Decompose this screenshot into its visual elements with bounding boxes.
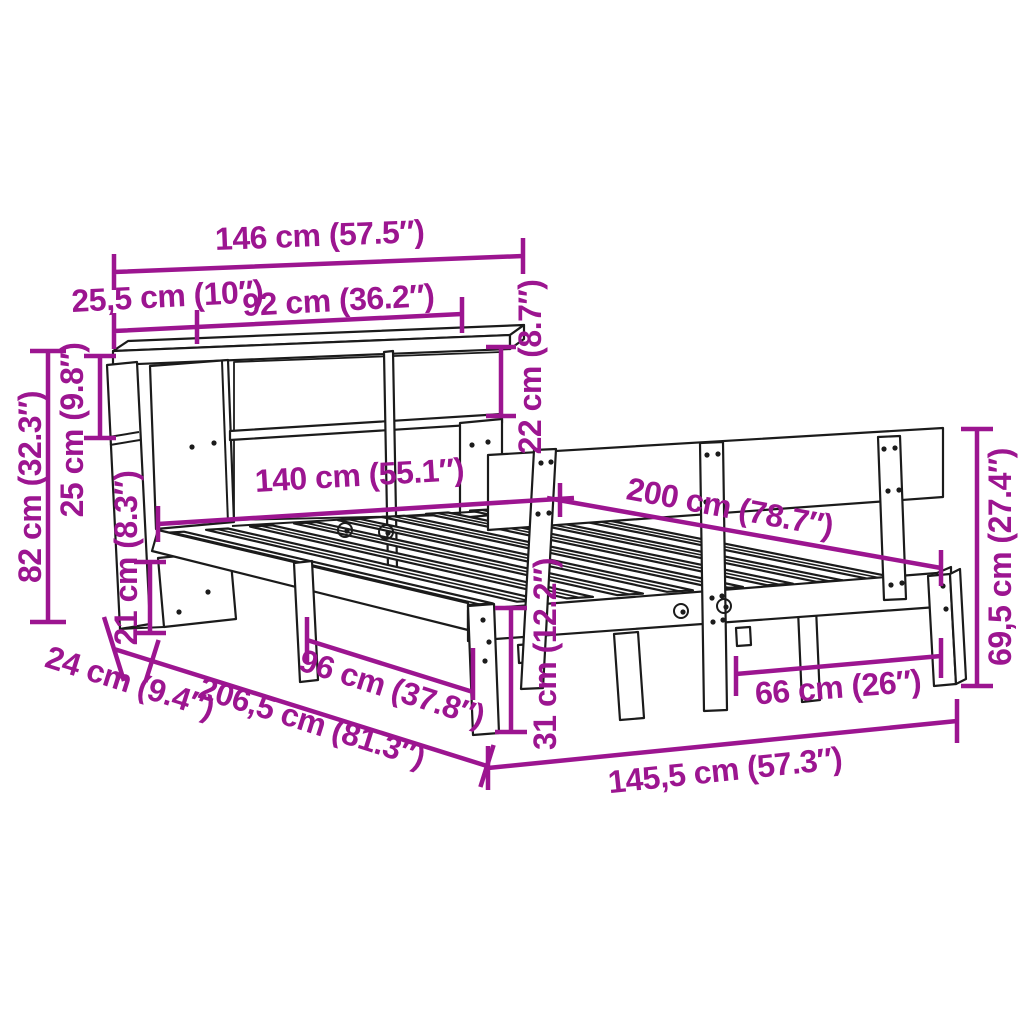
- dim-headboard-height-label: 69,5 cm (27.4″): [982, 448, 1018, 666]
- dim-left-shelf-height-label: 25 cm (9.8″): [54, 343, 90, 518]
- dim-frame-height-label: 31 cm (12.2″): [527, 558, 563, 750]
- bed-diagram-svg: 146 cm (57.5″) 25,5 cm (10″) 92 cm (36.2…: [0, 0, 1024, 1024]
- dim-headboard-height: 69,5 cm (27.4″): [961, 429, 1018, 686]
- dim-total-width-label: 145,5 cm (57.3″): [606, 740, 844, 800]
- dim-top-shelf-height-label: 22 cm (8.7″): [512, 280, 548, 455]
- dim-bottom-clearance-label: 21 cm (8.3″): [108, 471, 144, 646]
- dim-bookcase-width-label: 146 cm (57.5″): [214, 213, 425, 257]
- middle-front-leg: [614, 632, 644, 720]
- dim-frame-height: 31 cm (12.2″): [495, 558, 563, 750]
- dim-bookcase-depth-label: 24 cm (9.4″): [41, 639, 218, 726]
- dimension-diagram: 146 cm (57.5″) 25,5 cm (10″) 92 cm (36.2…: [0, 0, 1024, 1024]
- rail-cleat-right: [736, 627, 751, 646]
- dim-left-section-width-label: 25,5 cm (10″): [70, 273, 264, 319]
- dim-foot-leg-spacing: 66 cm (26″): [736, 638, 941, 711]
- dim-bookcase-height-label: 82 cm (32.3″): [12, 391, 48, 583]
